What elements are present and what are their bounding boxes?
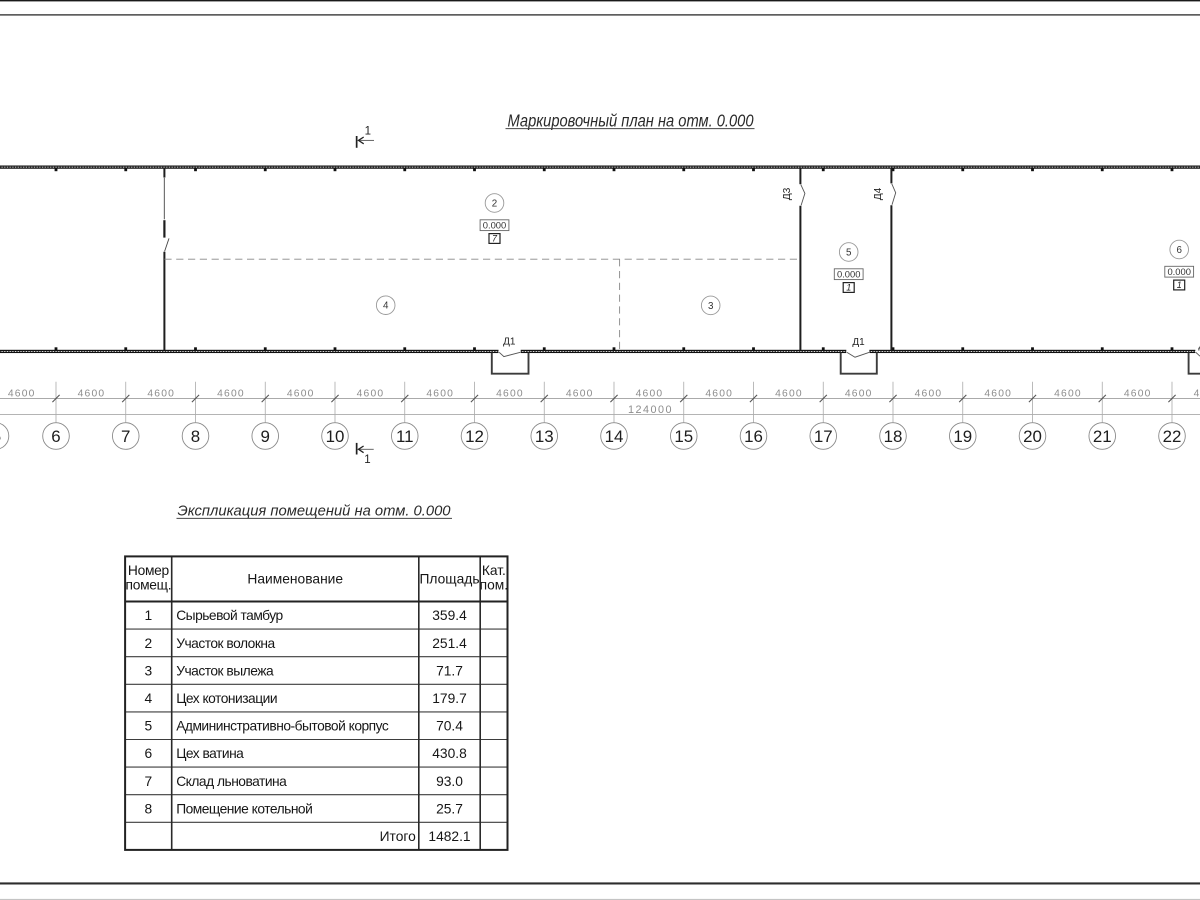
svg-text:4600: 4600: [217, 388, 244, 399]
svg-text:10: 10: [326, 427, 345, 446]
svg-text:359.4: 359.4: [432, 608, 467, 623]
svg-text:11: 11: [396, 427, 414, 446]
svg-text:21: 21: [1093, 427, 1112, 446]
svg-text:1: 1: [365, 125, 371, 137]
svg-text:9: 9: [261, 427, 270, 446]
svg-text:Экспликация помещений на отм.: Экспликация помещений на отм. 0.000: [178, 503, 452, 520]
svg-text:Склад льноватина: Склад льноватина: [176, 774, 287, 789]
svg-text:Участок волокна: Участок волокна: [176, 636, 275, 651]
svg-text:Площадь: Площадь: [419, 572, 479, 587]
svg-text:Кат.: Кат.: [482, 563, 506, 578]
svg-text:4600: 4600: [8, 388, 35, 399]
svg-text:6: 6: [145, 746, 153, 761]
svg-text:71.7: 71.7: [436, 663, 463, 678]
svg-text:4600: 4600: [496, 388, 523, 399]
svg-text:8: 8: [145, 801, 153, 816]
svg-text:0.000: 0.000: [837, 269, 860, 280]
svg-text:1: 1: [145, 608, 153, 623]
svg-text:1: 1: [364, 454, 370, 466]
svg-text:4600: 4600: [287, 388, 314, 399]
svg-text:18: 18: [884, 427, 903, 446]
svg-text:4600: 4600: [1124, 388, 1151, 399]
svg-text:Итого: Итого: [380, 829, 416, 844]
svg-text:13: 13: [535, 427, 554, 446]
svg-text:0.000: 0.000: [483, 220, 506, 231]
svg-text:Номер: Номер: [128, 563, 170, 578]
svg-text:Д4: Д4: [873, 187, 884, 200]
svg-text:Цех ватина: Цех ватина: [176, 746, 244, 761]
svg-text:20: 20: [1023, 427, 1042, 446]
svg-text:22: 22: [1163, 427, 1182, 446]
svg-text:8: 8: [191, 427, 200, 446]
svg-text:Д3: Д3: [782, 187, 793, 200]
svg-text:25.7: 25.7: [436, 801, 463, 816]
svg-text:93.0: 93.0: [436, 774, 463, 789]
svg-text:2: 2: [145, 636, 153, 651]
svg-text:4600: 4600: [915, 388, 942, 399]
svg-text:4600: 4600: [1054, 388, 1081, 399]
svg-text:16: 16: [744, 427, 763, 446]
svg-text:5: 5: [145, 719, 153, 734]
svg-text:14: 14: [605, 427, 624, 446]
svg-text:4600: 4600: [147, 388, 174, 399]
svg-text:4600: 4600: [426, 388, 453, 399]
svg-text:6: 6: [51, 427, 60, 446]
svg-text:Сырьевой тамбур: Сырьевой тамбур: [176, 608, 283, 623]
svg-text:179.7: 179.7: [432, 691, 467, 706]
svg-text:0.000: 0.000: [1167, 266, 1190, 277]
svg-text:70.4: 70.4: [436, 719, 463, 734]
svg-text:17: 17: [814, 427, 833, 446]
svg-text:4: 4: [383, 301, 389, 312]
svg-text:7: 7: [121, 427, 130, 446]
svg-text:Д1: Д1: [503, 337, 516, 348]
svg-text:4600: 4600: [636, 388, 663, 399]
svg-text:3: 3: [708, 301, 714, 312]
svg-text:4600: 4600: [78, 388, 105, 399]
svg-text:124000: 124000: [628, 404, 672, 416]
svg-text:Д1: Д1: [852, 337, 865, 348]
svg-text:4600: 4600: [357, 388, 384, 399]
svg-text:5: 5: [0, 427, 1, 446]
svg-text:1482.1: 1482.1: [428, 829, 470, 844]
svg-text:помещ.: помещ.: [126, 578, 172, 593]
svg-text:7: 7: [145, 774, 153, 789]
svg-text:19: 19: [953, 427, 972, 446]
svg-text:3: 3: [145, 663, 153, 678]
svg-text:Наименование: Наименование: [247, 572, 343, 587]
svg-text:4600: 4600: [566, 388, 593, 399]
svg-text:4600: 4600: [845, 388, 872, 399]
svg-text:2: 2: [492, 199, 497, 210]
svg-text:Маркировочный план на отм. 0.0: Маркировочный план на отм. 0.000: [508, 111, 754, 131]
svg-text:Помещение котельной: Помещение котельной: [176, 801, 312, 816]
svg-text:4: 4: [145, 691, 153, 706]
svg-text:1: 1: [846, 283, 851, 293]
svg-text:15: 15: [674, 427, 693, 446]
svg-text:6: 6: [1176, 245, 1182, 256]
svg-text:430.8: 430.8: [432, 746, 467, 761]
svg-text:4600: 4600: [705, 388, 732, 399]
svg-text:пом.: пом.: [480, 578, 508, 593]
svg-text:12: 12: [465, 427, 484, 446]
svg-text:Админинстративно-бытовой корпу: Админинстративно-бытовой корпус: [176, 719, 389, 734]
svg-text:1: 1: [1177, 280, 1182, 290]
svg-text:251.4: 251.4: [432, 636, 467, 651]
svg-text:4600: 4600: [775, 388, 802, 399]
svg-text:4600: 4600: [1194, 388, 1200, 399]
svg-text:Участок вылежа: Участок вылежа: [176, 663, 274, 678]
svg-text:5: 5: [846, 248, 852, 259]
svg-text:7: 7: [492, 234, 498, 244]
svg-text:Цех котонизации: Цех котонизации: [176, 691, 277, 706]
svg-text:4600: 4600: [984, 388, 1011, 399]
